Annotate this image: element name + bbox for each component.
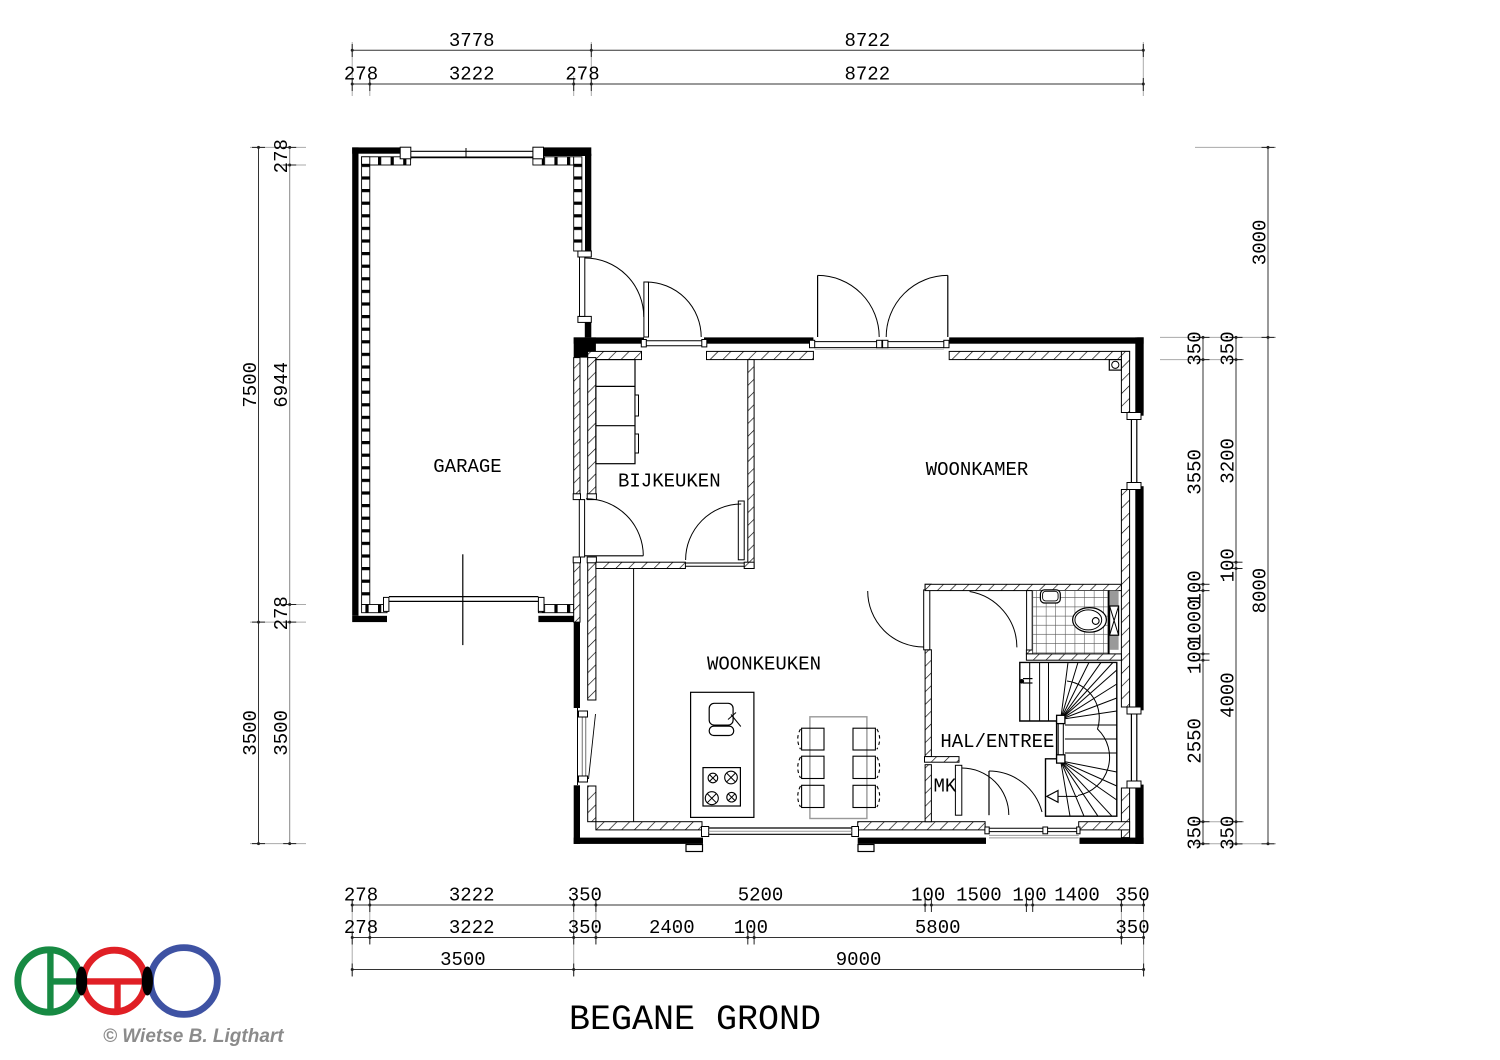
svg-text:350: 350 (1218, 331, 1240, 365)
svg-text:8722: 8722 (844, 30, 890, 52)
svg-text:3500: 3500 (271, 710, 293, 756)
svg-text:278: 278 (344, 64, 378, 86)
svg-text:100: 100 (734, 917, 768, 939)
svg-text:3222: 3222 (449, 64, 495, 86)
svg-text:WOONKAMER: WOONKAMER (926, 459, 1029, 481)
svg-text:3222: 3222 (449, 917, 495, 939)
svg-text:3778: 3778 (449, 30, 495, 52)
svg-text:100: 100 (1012, 885, 1046, 907)
svg-text:WOONKEUKEN: WOONKEUKEN (707, 654, 821, 676)
svg-text:3500: 3500 (440, 949, 486, 971)
svg-text:3550: 3550 (1185, 449, 1207, 495)
svg-text:350: 350 (1115, 885, 1149, 907)
svg-text:1400: 1400 (1054, 885, 1100, 907)
svg-text:2550: 2550 (1185, 718, 1207, 764)
svg-text:9000: 9000 (836, 949, 882, 971)
svg-text:7500: 7500 (240, 362, 262, 408)
svg-text:5200: 5200 (738, 885, 784, 907)
svg-text:8722: 8722 (844, 64, 890, 86)
svg-text:100: 100 (1185, 640, 1207, 674)
svg-text:3200: 3200 (1218, 438, 1240, 484)
svg-text:© Wietse B. Ligthart: © Wietse B. Ligthart (103, 1026, 284, 1047)
svg-text:100: 100 (1185, 570, 1207, 604)
svg-text:350: 350 (1185, 816, 1207, 850)
svg-text:1500: 1500 (956, 885, 1002, 907)
svg-text:4000: 4000 (1218, 672, 1240, 718)
svg-text:BIJKEUKEN: BIJKEUKEN (618, 471, 721, 493)
svg-text:3222: 3222 (449, 885, 495, 907)
svg-text:350: 350 (1115, 917, 1149, 939)
svg-text:5800: 5800 (915, 917, 961, 939)
svg-text:3500: 3500 (240, 710, 262, 756)
svg-text:HAL/ENTREE: HAL/ENTREE (940, 731, 1054, 753)
svg-text:MK: MK (933, 776, 956, 798)
svg-text:350: 350 (568, 917, 602, 939)
svg-text:278: 278 (344, 917, 378, 939)
svg-text:350: 350 (1185, 331, 1207, 365)
svg-text:BEGANE GROND: BEGANE GROND (569, 1000, 821, 1040)
svg-text:278: 278 (271, 139, 293, 173)
svg-text:3000: 3000 (1250, 220, 1272, 266)
svg-text:GARAGE: GARAGE (433, 456, 501, 478)
svg-text:100: 100 (911, 885, 945, 907)
svg-text:350: 350 (568, 885, 602, 907)
svg-text:278: 278 (271, 596, 293, 630)
svg-text:6944: 6944 (271, 362, 293, 408)
svg-text:350: 350 (1218, 816, 1240, 850)
svg-text:278: 278 (565, 64, 599, 86)
svg-text:278: 278 (344, 885, 378, 907)
svg-text:100: 100 (1218, 548, 1240, 582)
svg-text:8000: 8000 (1250, 568, 1272, 614)
svg-text:2400: 2400 (649, 917, 695, 939)
svg-text:1000: 1000 (1185, 599, 1207, 645)
